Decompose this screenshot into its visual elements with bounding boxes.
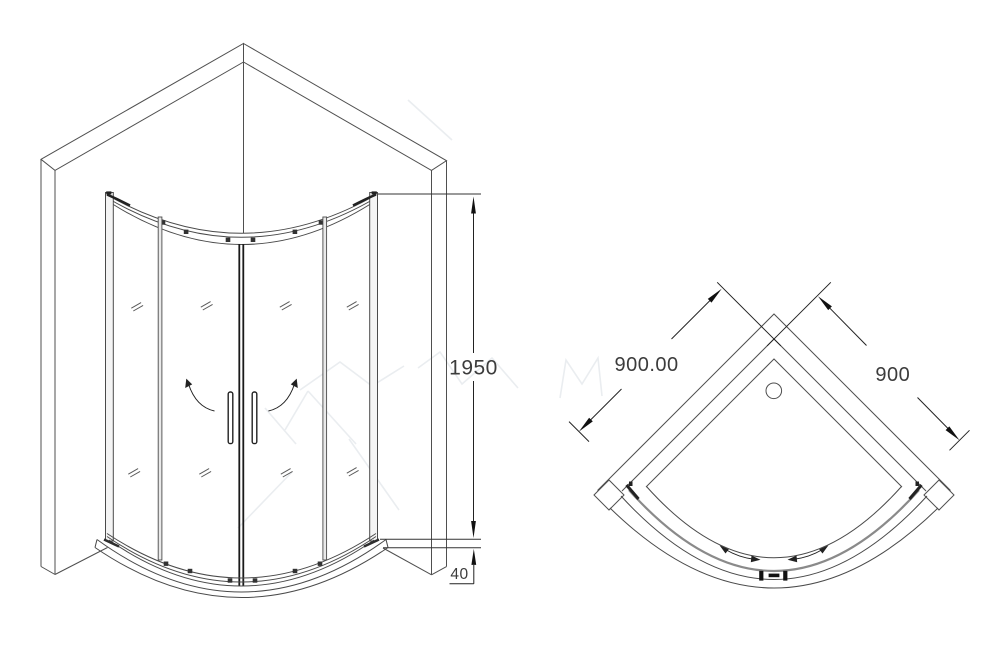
svg-text:40: 40 [450,566,468,583]
svg-text:900.00: 900.00 [615,354,679,376]
svg-text:900: 900 [875,364,910,386]
svg-text:1950: 1950 [449,357,498,380]
